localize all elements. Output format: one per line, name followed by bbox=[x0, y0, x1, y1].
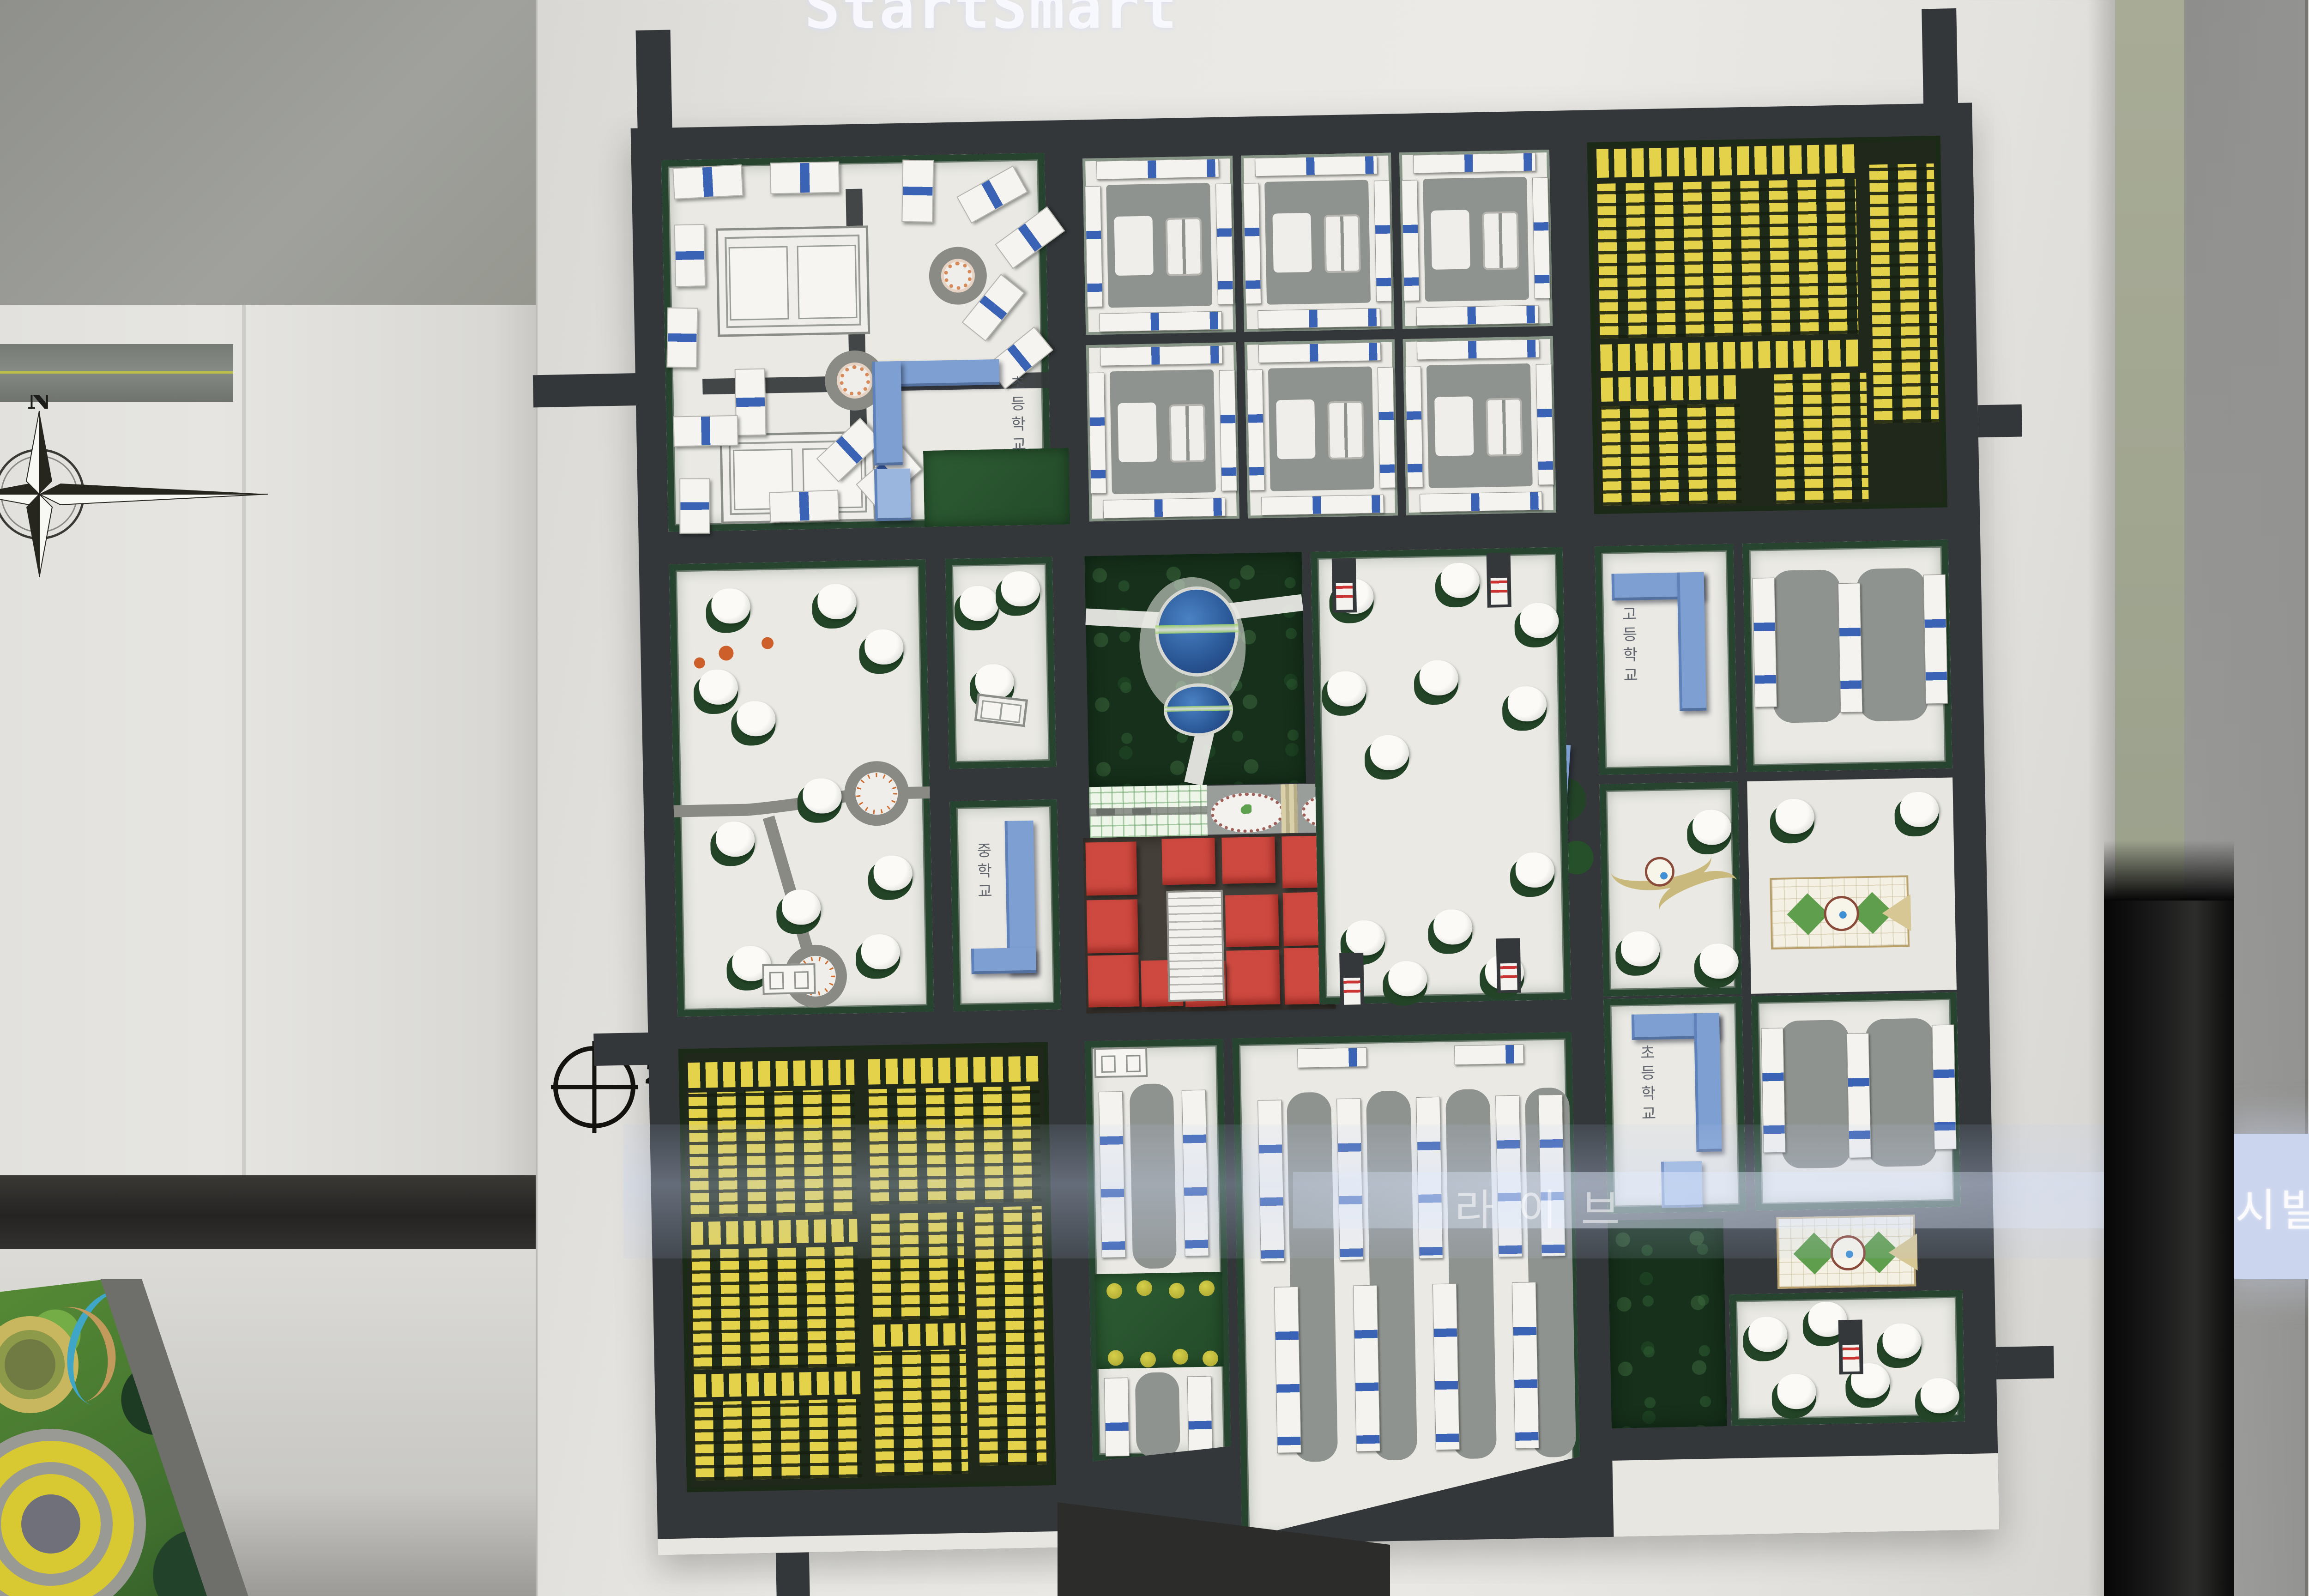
model-tree bbox=[1433, 909, 1475, 948]
apartment-bar-building bbox=[1261, 495, 1384, 515]
apartment-bar-building bbox=[1182, 1090, 1209, 1257]
model-tree bbox=[1775, 798, 1817, 837]
block-rowhouses-sw bbox=[678, 1042, 1056, 1492]
apartment-module bbox=[1086, 342, 1239, 521]
projector-screen-reflection: 시발표 bbox=[2230, 1134, 2309, 1279]
block-mini bbox=[945, 557, 1057, 769]
svg-text:N: N bbox=[27, 395, 51, 415]
block-elementary-school: 초등학교 bbox=[1603, 996, 1746, 1214]
block-apartments bbox=[1077, 143, 1562, 524]
school-building-L bbox=[1694, 1013, 1722, 1152]
apartment-courtyard bbox=[1110, 369, 1216, 494]
apartment-bar-building bbox=[1096, 159, 1219, 180]
campus-building bbox=[956, 165, 1028, 224]
block-long-pads bbox=[1233, 1032, 1582, 1544]
red-complex-hall bbox=[1167, 890, 1225, 1002]
paved-lot bbox=[1771, 569, 1843, 723]
model-tree bbox=[960, 586, 1001, 624]
apartment-courtyard bbox=[1106, 183, 1212, 308]
red-building bbox=[1088, 955, 1139, 1007]
campus-courtyard-building bbox=[716, 225, 870, 337]
road-stub bbox=[593, 1033, 650, 1066]
rowhouse-strip bbox=[1596, 144, 1856, 178]
model-tree bbox=[861, 934, 902, 973]
apartment-bar-building bbox=[1838, 583, 1862, 713]
school-building-L bbox=[872, 361, 902, 465]
campus-building bbox=[666, 308, 698, 368]
model-tree bbox=[1520, 603, 1561, 641]
model-tree bbox=[1388, 961, 1430, 999]
apartment-bar-building bbox=[1753, 578, 1777, 707]
rowhouse-strip bbox=[873, 1323, 966, 1347]
campus-building bbox=[770, 162, 840, 194]
sign-post bbox=[1496, 938, 1521, 993]
apartment-bar-building bbox=[1417, 339, 1540, 360]
apartment-bar-building bbox=[1088, 373, 1106, 494]
park-tree-dot bbox=[1136, 1280, 1153, 1296]
road-stub bbox=[1978, 404, 2022, 437]
school-label: 초등학교 bbox=[1635, 1044, 1659, 1126]
photo-scene: N StartSmart Microso Office Ex N 1:2000S… bbox=[0, 0, 2309, 1596]
rowhouse-caps bbox=[871, 1212, 965, 1320]
apartment-module bbox=[1241, 153, 1394, 332]
apartment-bar-building bbox=[1297, 1047, 1367, 1068]
model-tree bbox=[1920, 1378, 1962, 1416]
compass-rose-icon: N bbox=[0, 395, 275, 598]
block-park bbox=[669, 559, 934, 1016]
apartment-module bbox=[1399, 150, 1553, 329]
road-stub bbox=[636, 30, 672, 133]
garden-pond bbox=[1824, 895, 1859, 931]
school-label: 중학교 bbox=[971, 842, 995, 903]
apartment-bar-building bbox=[1353, 1285, 1380, 1452]
campus-roundabout bbox=[929, 246, 987, 305]
model-tree bbox=[1419, 660, 1461, 699]
model-tree bbox=[715, 821, 757, 860]
left-board-yellow-line bbox=[0, 371, 233, 374]
model-tree bbox=[1507, 686, 1549, 725]
rowhouse-strip bbox=[868, 1056, 1039, 1085]
school-label: 고등학교 bbox=[1617, 605, 1641, 687]
garden-pond bbox=[1830, 1235, 1866, 1270]
apartment-bar-building bbox=[1257, 308, 1380, 329]
rowhouse-caps bbox=[1597, 179, 1858, 339]
apartment-courtyard bbox=[1264, 180, 1371, 305]
block-playground bbox=[1599, 781, 1742, 997]
apartment-bar-building bbox=[1532, 177, 1550, 299]
apartment-bar-building bbox=[1336, 1098, 1364, 1260]
red-building bbox=[1085, 841, 1137, 895]
formal-garden bbox=[1776, 1215, 1916, 1289]
school-building-L bbox=[1677, 572, 1706, 711]
campus-building bbox=[679, 478, 710, 534]
road-stub bbox=[1996, 1346, 2054, 1379]
driveway bbox=[1130, 1083, 1177, 1269]
block-middle-school: 중학교 bbox=[950, 799, 1061, 1011]
apartment-bar-building bbox=[1103, 498, 1226, 519]
apartment-bar-building bbox=[1405, 366, 1423, 488]
apartment-bar-building bbox=[1413, 153, 1536, 174]
block-strip-park bbox=[1085, 1039, 1231, 1462]
sign-post bbox=[1838, 1319, 1863, 1374]
campus-building bbox=[769, 490, 839, 522]
model-tree bbox=[1327, 671, 1368, 710]
rowhouse-caps bbox=[689, 1089, 857, 1217]
rowhouse-caps bbox=[1602, 404, 1742, 506]
apartment-bar-building bbox=[1402, 180, 1420, 301]
forest-square bbox=[1608, 1218, 1727, 1428]
garden-diamond bbox=[1794, 1233, 1835, 1274]
strip-park bbox=[1094, 1272, 1224, 1369]
model-tree bbox=[1882, 1323, 1924, 1362]
campus-building bbox=[674, 224, 706, 287]
apartment-bar-building bbox=[1255, 156, 1378, 176]
sports-field-icon bbox=[1094, 1047, 1148, 1078]
apartment-bar-building bbox=[1104, 1378, 1130, 1457]
rowhouse-strip bbox=[1601, 375, 1740, 402]
board-patch bbox=[1612, 1453, 1999, 1537]
block-bottom-plaza bbox=[1729, 1290, 1965, 1426]
school-annex bbox=[1661, 1161, 1703, 1208]
rowhouse-caps bbox=[869, 1086, 1042, 1205]
rowhouse-strip bbox=[688, 1059, 854, 1088]
paved-lot bbox=[1779, 1020, 1851, 1169]
apartment-bar-building bbox=[1215, 183, 1233, 305]
campus-building bbox=[995, 206, 1065, 269]
apartment-bar-building bbox=[1378, 367, 1396, 489]
boulevard-crosswalk bbox=[1281, 784, 1298, 834]
apartment-courtyard bbox=[1268, 366, 1374, 491]
road-stub bbox=[1922, 8, 1958, 108]
model-tree bbox=[699, 669, 740, 708]
campus-building bbox=[901, 160, 934, 223]
sign-post bbox=[1487, 553, 1511, 608]
red-building bbox=[1226, 950, 1280, 1005]
sign-post bbox=[1339, 953, 1364, 1008]
block-rowhouses-ne bbox=[1587, 136, 1947, 514]
campus-building bbox=[672, 164, 743, 199]
apartment-bar-building bbox=[1416, 1097, 1443, 1259]
apartment-bar-building bbox=[1512, 1282, 1539, 1449]
apartment-bar-building bbox=[1243, 183, 1261, 304]
sign-post bbox=[1332, 558, 1357, 613]
apartment-bar-building bbox=[1099, 311, 1222, 332]
shelf-shadow-band bbox=[0, 1175, 536, 1249]
red-building bbox=[1225, 895, 1279, 947]
apartment-bar-building bbox=[1374, 181, 1392, 302]
pond-lower bbox=[1163, 683, 1233, 737]
city-model: 초등학교중학교고등학교초등학교 bbox=[631, 103, 2000, 1555]
park-tree-dot bbox=[1108, 1350, 1124, 1366]
rowhouse-caps bbox=[695, 1399, 862, 1481]
apartment-bar-building bbox=[1274, 1287, 1301, 1453]
block-forest-park bbox=[1085, 552, 1306, 787]
model-tree bbox=[1515, 852, 1557, 891]
block-red-complex bbox=[1083, 833, 1336, 1013]
block-high-school: 고등학교 bbox=[1595, 544, 1737, 775]
garden-triangle bbox=[1882, 894, 1911, 931]
rowhouse-strip bbox=[1600, 339, 1859, 371]
rowhouse-caps bbox=[691, 1246, 860, 1370]
apartment-bar-building bbox=[1100, 345, 1223, 366]
model-tree bbox=[711, 588, 753, 627]
wall-background bbox=[0, 0, 536, 305]
rowhouse-caps bbox=[874, 1349, 968, 1476]
park-tree-dot bbox=[1106, 1283, 1123, 1299]
park-tree-dot bbox=[1140, 1352, 1156, 1368]
model-tree bbox=[864, 629, 906, 668]
park-tree-dot bbox=[1199, 1280, 1215, 1296]
stand-pole bbox=[2104, 901, 2234, 1596]
apartment-bar-building bbox=[1923, 574, 1948, 704]
projection-reflection-title: StartSmart bbox=[804, 0, 1179, 42]
apartment-bar-building bbox=[1099, 1091, 1126, 1258]
boulevard-median bbox=[1207, 784, 1281, 834]
apartment-bar-building bbox=[1416, 305, 1539, 326]
school-building-L bbox=[971, 948, 1036, 974]
green-promenade bbox=[1089, 785, 1208, 838]
garden-triangle bbox=[1888, 1233, 1918, 1271]
block-tree-plaza bbox=[1311, 547, 1571, 1004]
apartment-bar-building bbox=[1454, 1044, 1524, 1065]
apartment-bar-building bbox=[1538, 1094, 1566, 1257]
sports-field-icon bbox=[762, 963, 816, 995]
apartment-bar-building bbox=[1219, 370, 1237, 491]
apartment-module bbox=[1245, 339, 1398, 518]
rowhouse-caps bbox=[975, 1206, 1047, 1466]
park-tree-dot bbox=[1203, 1350, 1219, 1366]
garden-diamond bbox=[1787, 893, 1828, 935]
driveway bbox=[1135, 1372, 1181, 1458]
model-tree bbox=[1440, 562, 1482, 601]
model-tree bbox=[873, 855, 915, 894]
red-building bbox=[1087, 899, 1138, 953]
model-tree bbox=[1001, 571, 1042, 610]
school-lawn bbox=[923, 448, 1070, 527]
school-annex bbox=[874, 469, 911, 521]
park-tree-dot bbox=[1173, 1348, 1189, 1365]
apartment-bar-building bbox=[1433, 1283, 1460, 1450]
road-stub bbox=[533, 373, 638, 407]
model-tree bbox=[1692, 810, 1734, 848]
block-paved-lots bbox=[1742, 540, 1952, 772]
model-tree bbox=[736, 701, 778, 739]
apartment-bar-building bbox=[1761, 1028, 1785, 1153]
apartment-module bbox=[1082, 156, 1236, 335]
campus-building bbox=[673, 415, 738, 447]
apartment-bar-building bbox=[1247, 369, 1265, 491]
model-tree bbox=[1699, 943, 1741, 982]
apartment-bar-building bbox=[1495, 1095, 1523, 1257]
model-tree bbox=[1900, 792, 1941, 830]
model-tree bbox=[817, 584, 859, 623]
model-tree bbox=[1748, 1316, 1789, 1355]
rowhouse-strip bbox=[694, 1371, 860, 1397]
red-building bbox=[1161, 838, 1215, 885]
paved-lot bbox=[1865, 1018, 1937, 1167]
model-tree bbox=[1777, 1373, 1819, 1412]
model-tree bbox=[803, 778, 844, 817]
apartment-courtyard bbox=[1423, 177, 1529, 302]
rowhouse-caps bbox=[1774, 373, 1868, 504]
apartment-bar-building bbox=[1257, 1100, 1285, 1262]
school-label: 초등학교 bbox=[1005, 375, 1029, 457]
formal-garden bbox=[1770, 875, 1910, 949]
apartment-bar-building bbox=[1932, 1025, 1956, 1150]
apartment-bar-building bbox=[1847, 1033, 1871, 1158]
model-tree bbox=[1370, 735, 1411, 774]
apartment-module bbox=[1403, 336, 1556, 515]
campus-building bbox=[735, 369, 767, 436]
apartment-courtyard bbox=[1427, 363, 1533, 488]
mini-building bbox=[974, 694, 1028, 727]
model-tree bbox=[1620, 931, 1662, 970]
apartment-bar-building bbox=[1085, 186, 1103, 308]
red-building bbox=[1221, 837, 1275, 884]
rowhouse-strip bbox=[691, 1219, 858, 1245]
model-tree bbox=[781, 889, 823, 928]
projector-screen-text: 시발표 bbox=[2235, 1174, 2309, 1239]
rowhouse-caps bbox=[1869, 163, 1939, 423]
paved-lot bbox=[1856, 568, 1928, 722]
apartment-bar-building bbox=[1187, 1376, 1213, 1455]
apartment-bar-building bbox=[1420, 491, 1542, 512]
park-tree-dot bbox=[1169, 1283, 1185, 1299]
apartment-bar-building bbox=[1258, 342, 1381, 363]
block-paved-lots bbox=[1751, 992, 1961, 1210]
apartment-bar-building bbox=[1536, 364, 1554, 485]
block-campus: 초등학교 bbox=[661, 153, 1052, 532]
